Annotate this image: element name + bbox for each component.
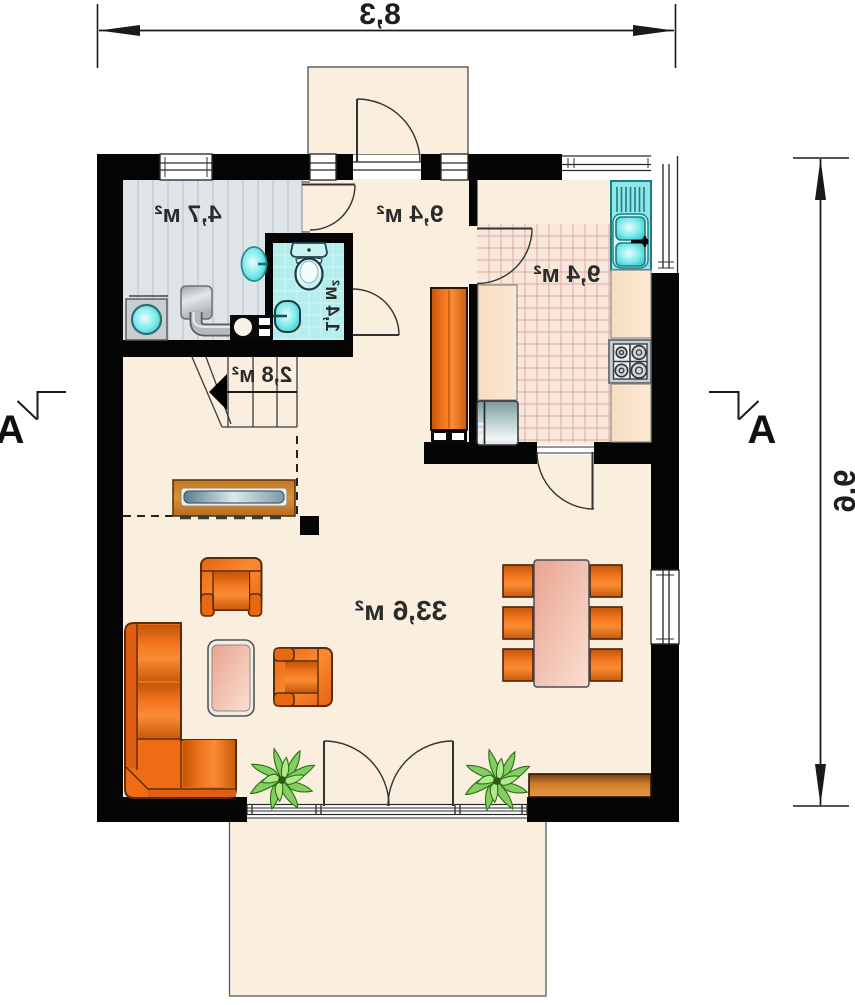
svg-text:9,6: 9,6 <box>827 469 855 512</box>
svg-text:4,7 м²: 4,7 м² <box>154 201 221 228</box>
svg-text:9,4 м²: 9,4 м² <box>533 261 600 288</box>
svg-text:A: A <box>0 408 24 452</box>
svg-text:1,4 м²: 1,4 м² <box>321 280 342 332</box>
svg-text:8,3: 8,3 <box>359 0 401 31</box>
svg-text:A: A <box>748 408 777 452</box>
svg-text:2,8 м²: 2,8 м² <box>232 362 292 387</box>
svg-text:9,4 м²: 9,4 м² <box>376 201 443 228</box>
svg-text:33,6 м²: 33,6 м² <box>355 595 447 626</box>
